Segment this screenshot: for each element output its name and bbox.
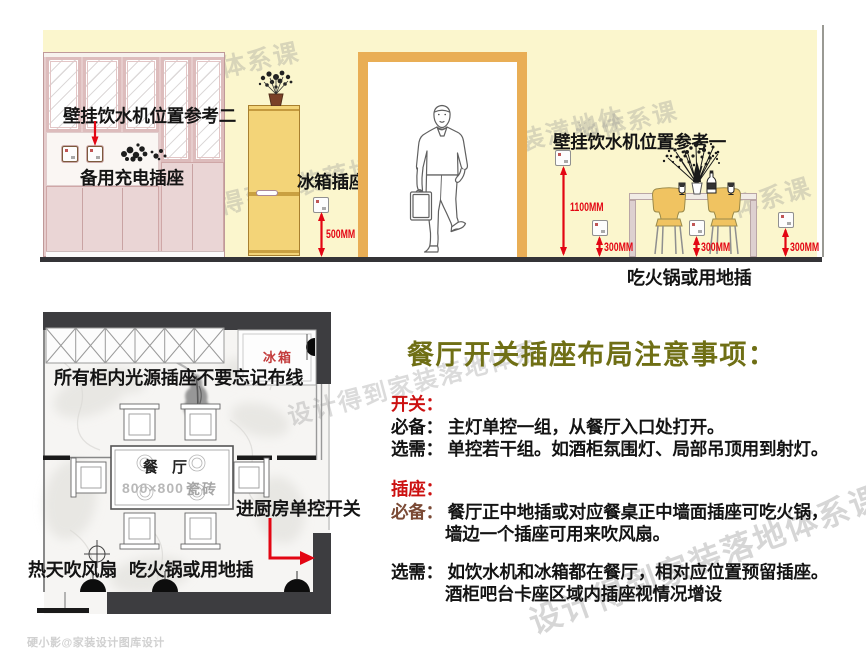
svg-text:餐厅: 餐厅 — [143, 458, 201, 476]
svg-text:瓷砖: 瓷砖 — [186, 481, 218, 497]
svg-text:800×800: 800×800 — [122, 480, 184, 496]
svg-text:冰箱: 冰箱 — [263, 350, 293, 365]
